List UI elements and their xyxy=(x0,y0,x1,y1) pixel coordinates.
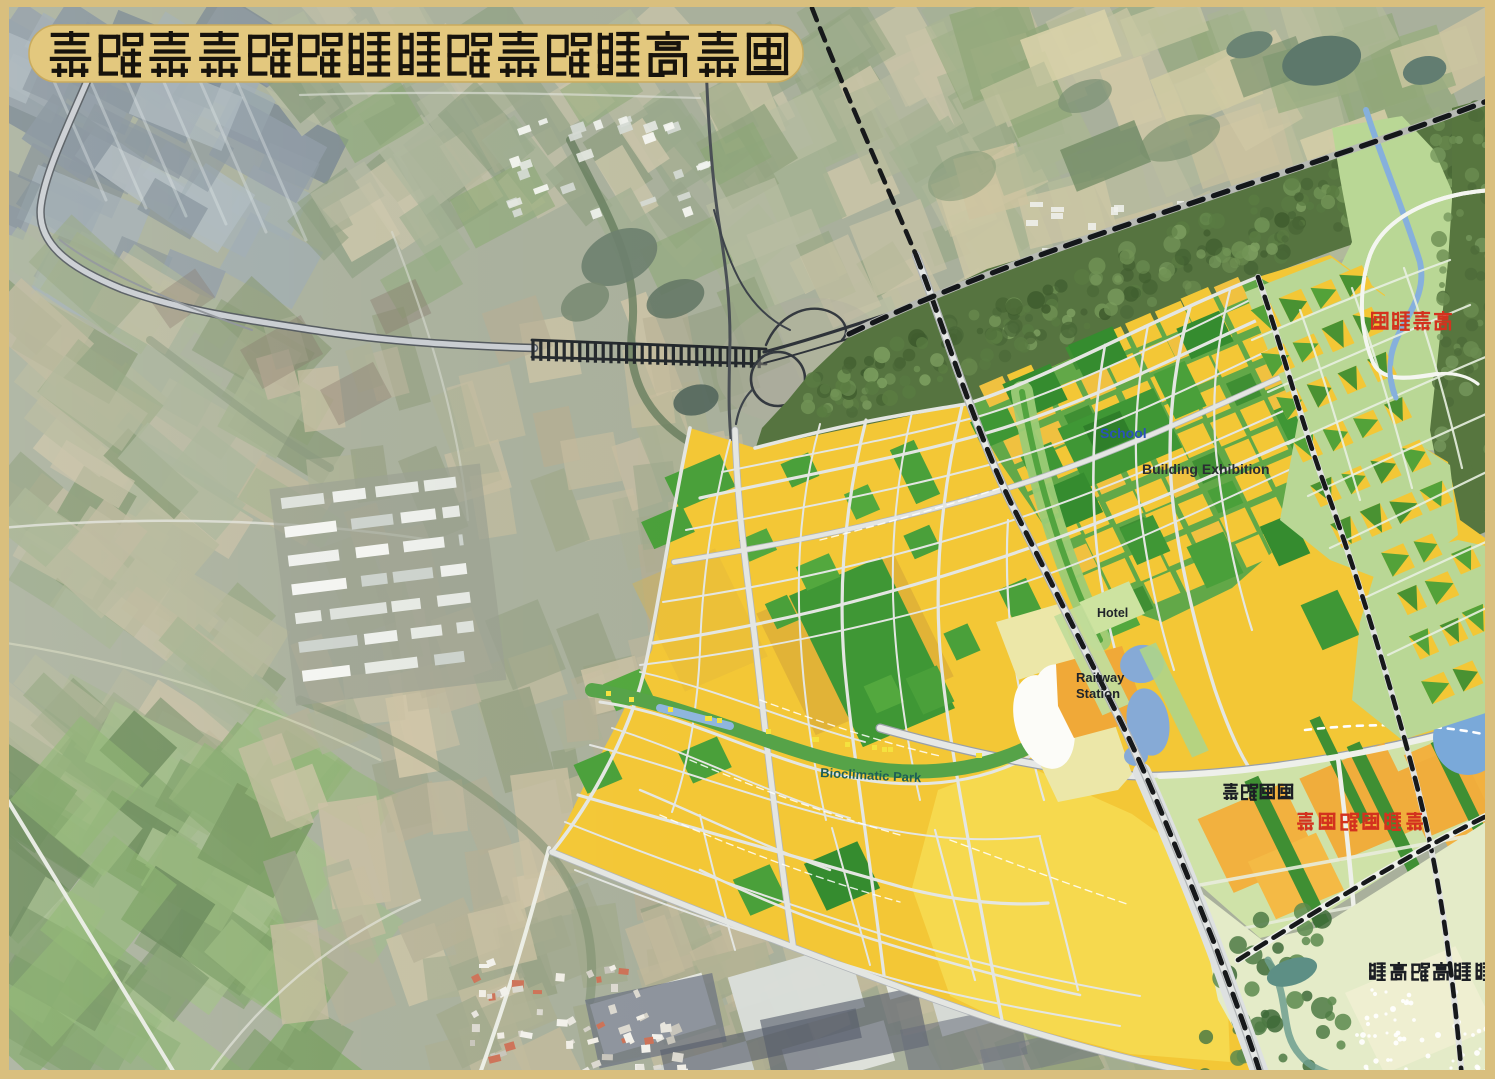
svg-text:Railway: Railway xyxy=(1076,670,1125,685)
svg-text:Building Exhibition: Building Exhibition xyxy=(1142,461,1270,477)
svg-text:Hotel: Hotel xyxy=(1097,606,1128,620)
svg-text:School: School xyxy=(1100,425,1147,441)
svg-text:Station: Station xyxy=(1076,686,1120,701)
